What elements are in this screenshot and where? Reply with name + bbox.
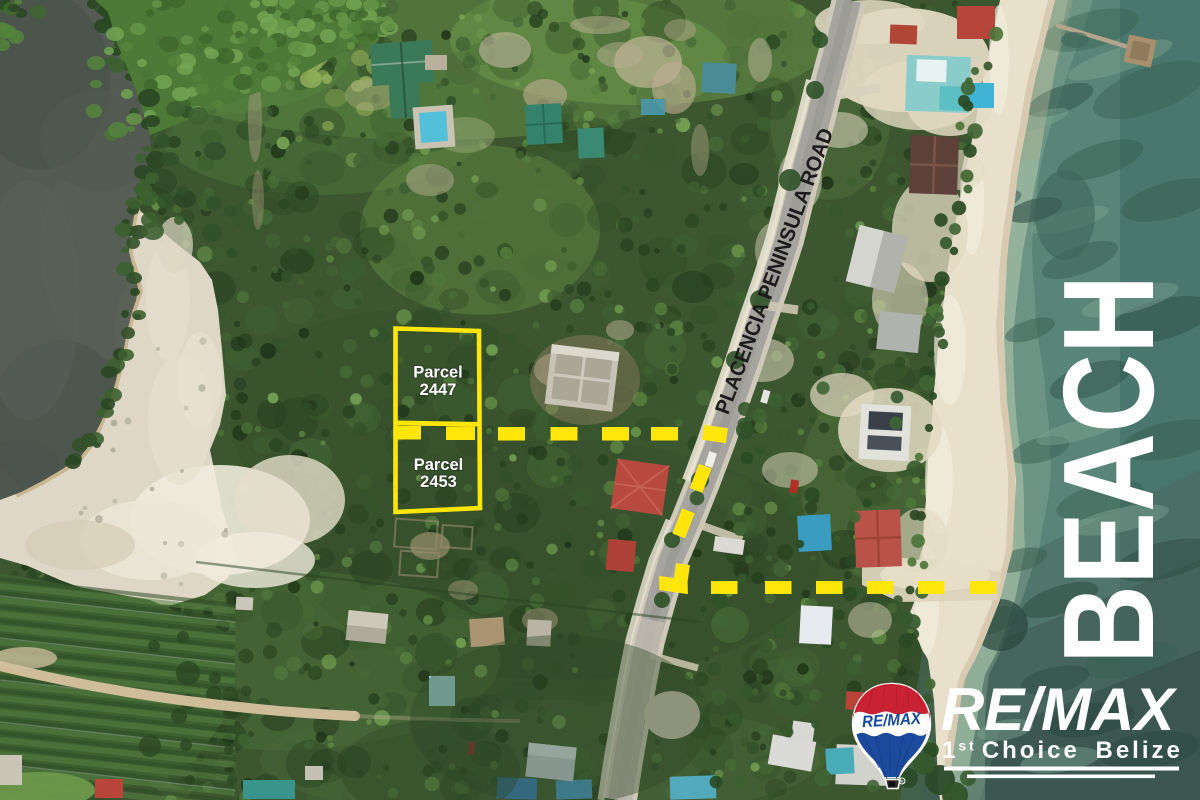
svg-text:RE/MAX: RE/MAX [941, 676, 1178, 743]
svg-text:Parcel: Parcel [414, 456, 464, 474]
svg-text:RE/MAX: RE/MAX [862, 710, 923, 732]
svg-text:2453: 2453 [420, 473, 457, 491]
svg-text:Parcel: Parcel [413, 364, 463, 382]
svg-text:2447: 2447 [420, 381, 457, 399]
svg-text:BEACH: BEACH [1038, 275, 1181, 664]
